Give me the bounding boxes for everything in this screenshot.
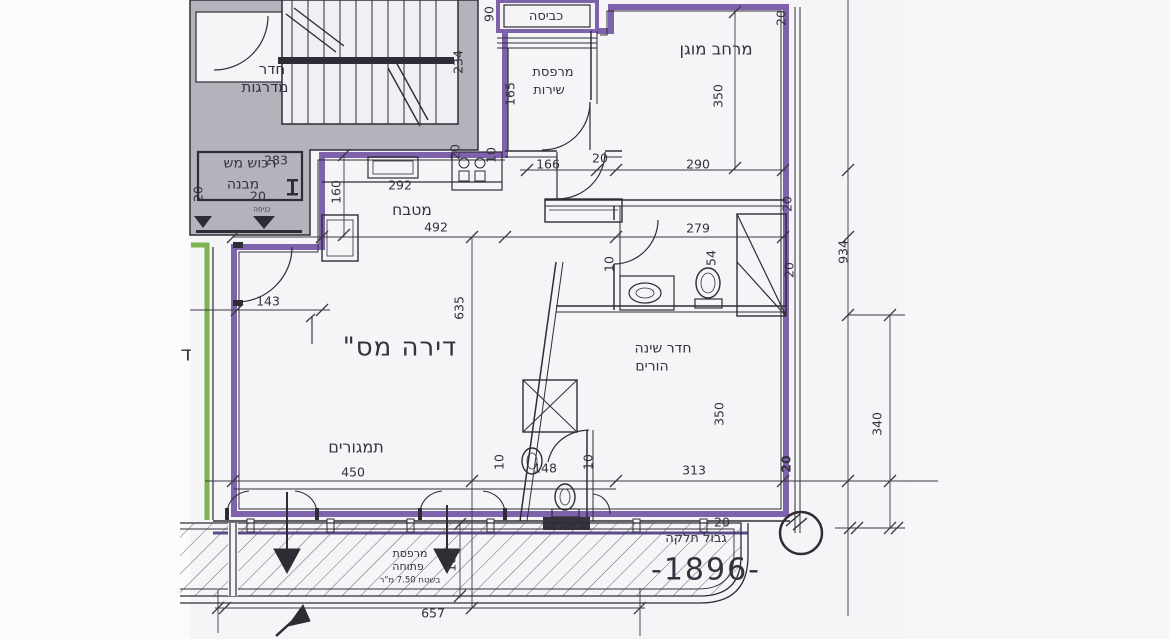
dimension-label: 20 xyxy=(714,515,730,530)
dimension-label: 279 xyxy=(686,221,710,236)
dimension-label: 20 xyxy=(592,151,608,166)
dimension-label: 635 xyxy=(452,296,467,320)
dimension-label: 234 xyxy=(451,50,466,74)
dimension-label: 90 xyxy=(482,6,497,22)
common-property-label-line2: מבנה xyxy=(227,178,259,193)
dimension-label: 143 xyxy=(256,294,280,309)
dimension-label: 20 xyxy=(782,262,797,278)
dimension-label: 20 xyxy=(780,196,795,212)
dimension-label: 160 xyxy=(329,180,344,204)
stairwell-label-line2: מדרגות xyxy=(242,80,289,96)
dimension-label: 105 xyxy=(444,548,459,572)
dimension-label: 313 xyxy=(682,463,706,478)
dimension-label: 10 xyxy=(602,256,617,272)
dimension-label: 166 xyxy=(536,157,560,172)
dimension-label: 20 xyxy=(191,186,206,202)
dimension-label: 148 xyxy=(533,461,557,476)
dimension-label: 350 xyxy=(711,84,726,108)
dimension-label: 10 xyxy=(581,454,596,470)
hall-closet xyxy=(545,199,622,222)
adjacent-unit-green-line xyxy=(191,245,213,520)
plot-boundary-label: גבול חלקה xyxy=(665,532,727,546)
dimension-label: 10 xyxy=(492,454,507,470)
protected-space-label: מרחב מוגן xyxy=(679,40,752,57)
dimension-label: 450 xyxy=(341,465,365,480)
plot-number-label: -1896- xyxy=(651,554,761,586)
ventilation-shaft xyxy=(737,214,786,316)
open-balcony-label-line1: מרפסת xyxy=(393,548,428,560)
dimension-label: 20 xyxy=(779,455,794,472)
dimension-label: 492 xyxy=(424,220,448,235)
service-balcony-label-line2: שירות xyxy=(533,84,565,98)
stairwell-label-line1: חדר xyxy=(259,62,285,78)
service-balcony-label-line1: מרפסת xyxy=(532,66,573,80)
dimension-label: 54 xyxy=(704,250,719,266)
parents-bedroom-label-line2: הורים xyxy=(635,360,668,375)
bathroom-fixtures xyxy=(620,268,722,310)
dimension-label: 20 xyxy=(774,10,789,26)
floor-plan-canvas: חדר מדרגות רכוש מש מבנה כניסה כביסה מרפס… xyxy=(0,0,1170,639)
kitchen-label: מטבח xyxy=(392,202,432,218)
apartment-number-title: דירה מס" xyxy=(343,334,457,361)
open-balcony-area-label: בשטח 7.50 מ"ר xyxy=(380,577,441,586)
dimension-label: 165 xyxy=(503,82,518,106)
open-balcony-label-line2: פתוחה xyxy=(392,561,423,573)
living-area-label: תמגורים xyxy=(328,440,384,457)
dimension-label: 20 xyxy=(448,144,463,160)
dimension-label: 10 xyxy=(484,147,499,163)
dimension-label: 657 xyxy=(421,606,445,621)
dimension-label: 934 xyxy=(836,240,851,264)
common-property-label-line1: רכוש מש xyxy=(224,157,277,172)
parents-bedroom-label-line1: חדר שינה xyxy=(635,342,692,357)
edge-partial-glyph: ד xyxy=(181,344,192,365)
dimension-label: 292 xyxy=(388,178,412,193)
plan-linework xyxy=(0,0,1170,639)
entrance-label: כניסה xyxy=(253,206,270,213)
dimension-label: 340 xyxy=(870,412,885,436)
dimension-label: 290 xyxy=(686,157,710,172)
dimension-label: 350 xyxy=(712,402,727,426)
laundry-label: כביסה xyxy=(529,10,563,24)
